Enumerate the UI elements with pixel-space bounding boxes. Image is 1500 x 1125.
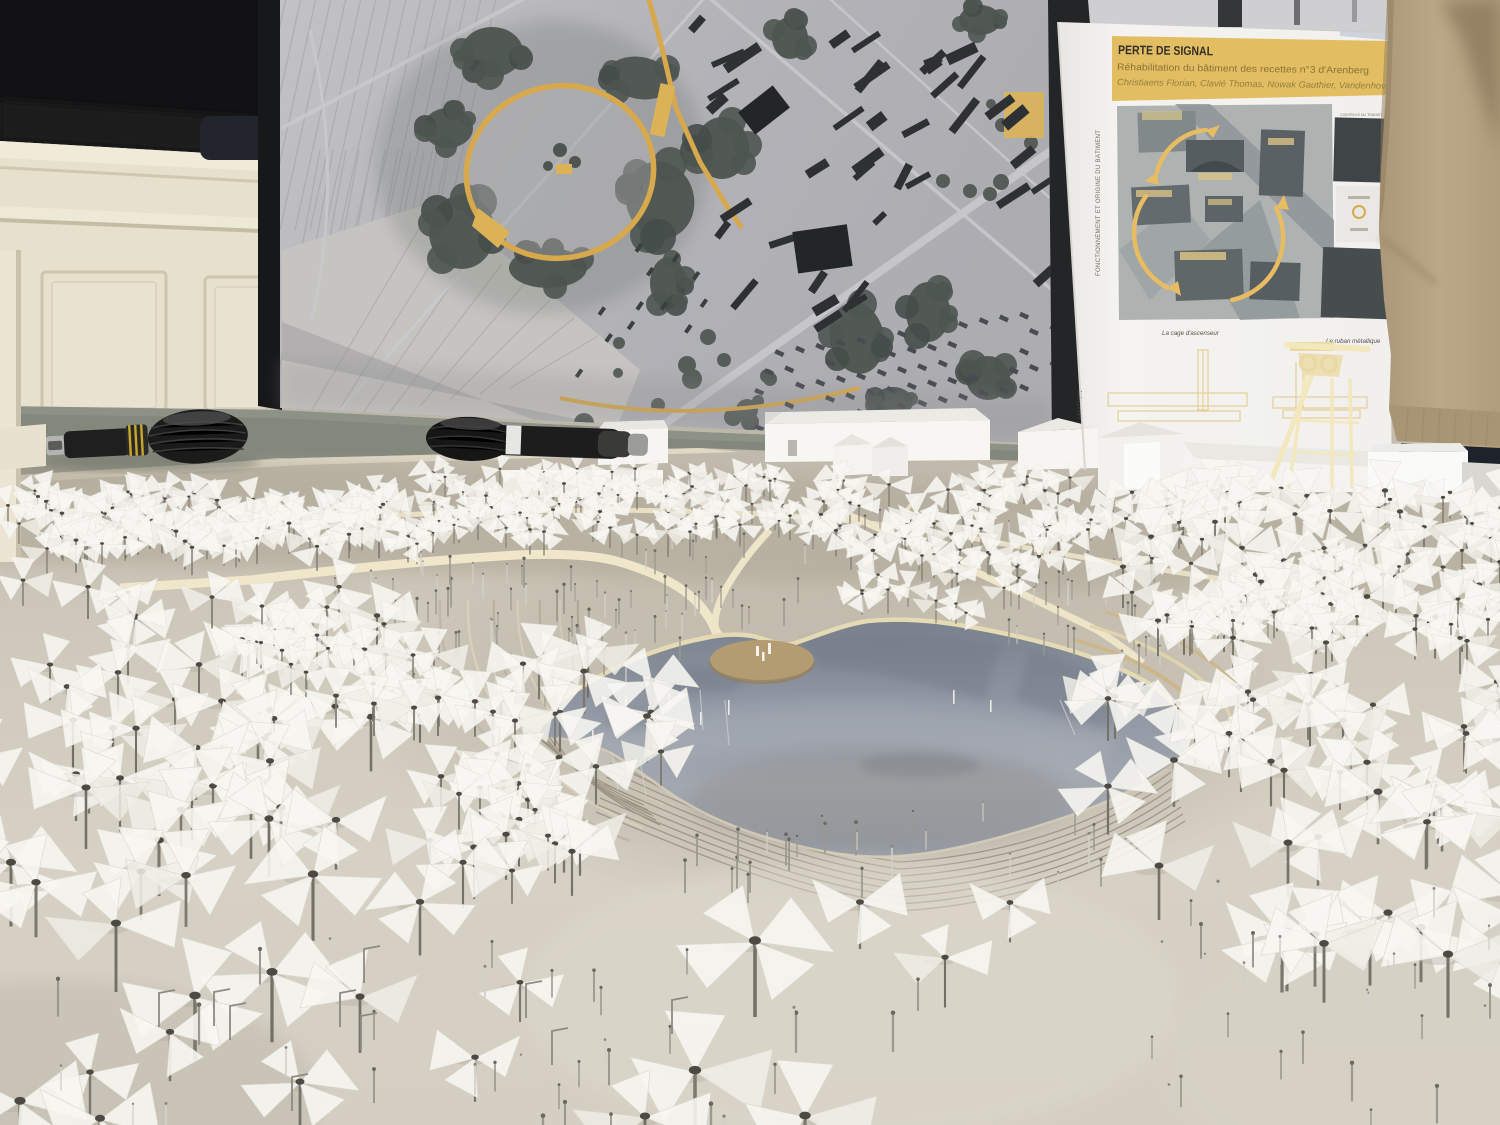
svg-text:CONTROLE DU TRANSIT: CONTROLE DU TRANSIT — [1340, 113, 1383, 117]
svg-text:PERTE DE SIGNAL: PERTE DE SIGNAL — [1118, 43, 1213, 58]
svg-text:Le ruban métallique: Le ruban métallique — [1326, 338, 1381, 345]
svg-text:La cage d'ascenseur: La cage d'ascenseur — [1162, 330, 1220, 337]
svg-text:FONCTIONNEMENT ET ORIGINE DU B: FONCTIONNEMENT ET ORIGINE DU BÂTIMENT — [1095, 130, 1102, 276]
